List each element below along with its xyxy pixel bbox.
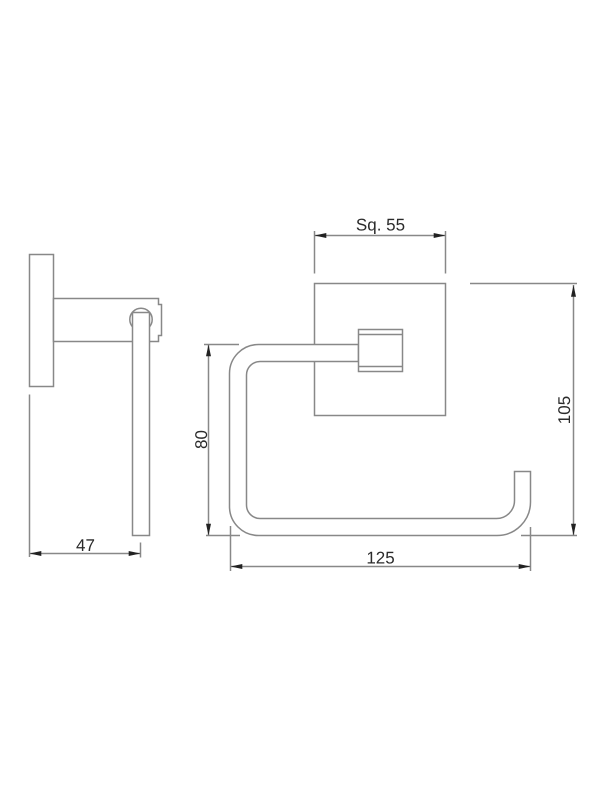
svg-text:Sq. 55: Sq. 55 <box>356 216 405 235</box>
svg-text:105: 105 <box>555 396 574 424</box>
svg-text:125: 125 <box>366 549 394 568</box>
svg-text:80: 80 <box>192 430 211 449</box>
svg-text:47: 47 <box>76 536 95 555</box>
